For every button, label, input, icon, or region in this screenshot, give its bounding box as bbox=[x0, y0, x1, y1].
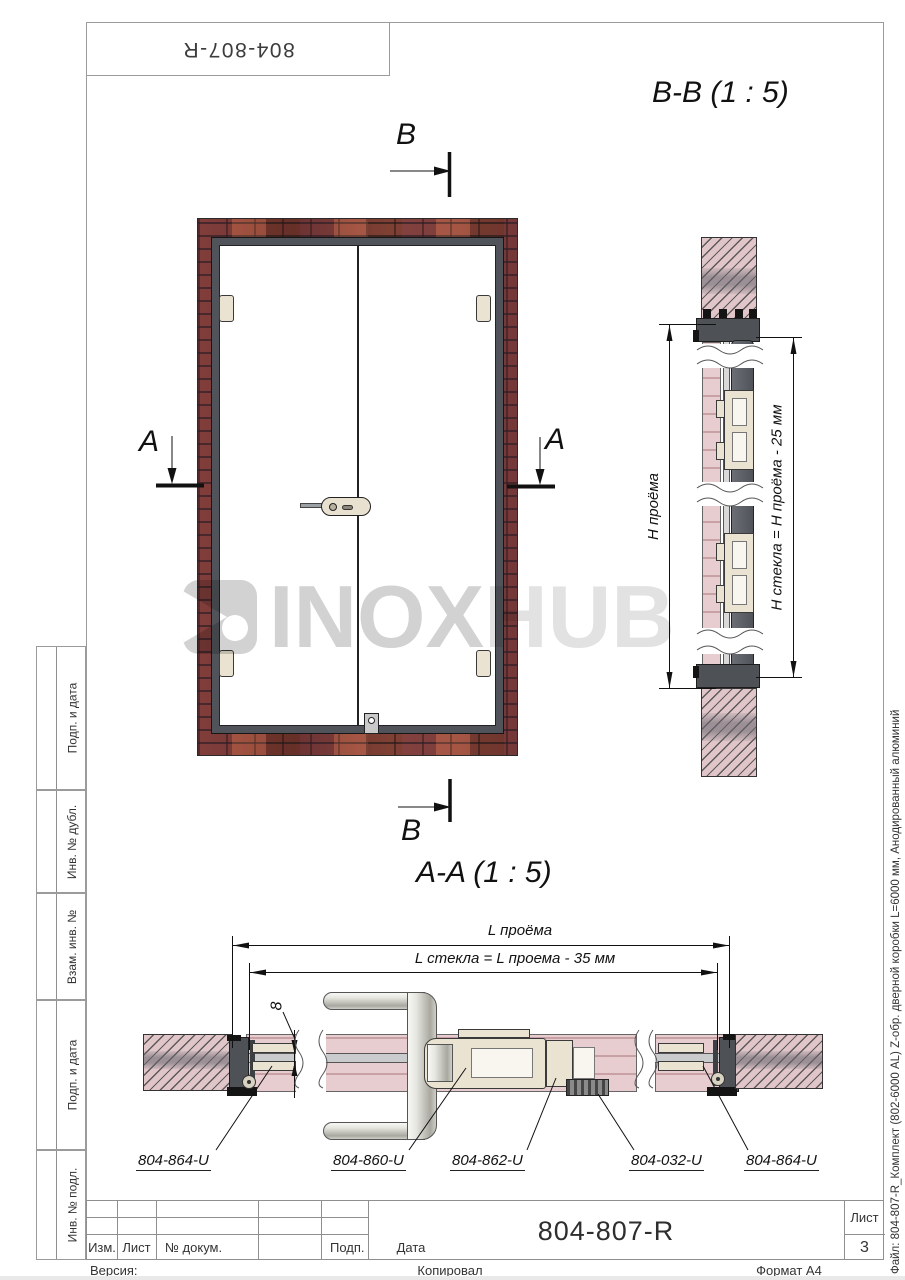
latch-slider bbox=[573, 1047, 595, 1079]
handle-plate bbox=[321, 497, 371, 516]
section-marker-a-left-letter: A bbox=[139, 425, 159, 459]
watermark-text-inox: INOX bbox=[269, 567, 484, 666]
lock-top-plate bbox=[458, 1029, 530, 1038]
section-marker-b-bottom-letter: B bbox=[401, 814, 421, 848]
bb-wall-bottom bbox=[701, 688, 757, 777]
bb-head-bracket bbox=[693, 330, 699, 342]
dim-l-glass-text: L стекла = L проема - 35 мм bbox=[315, 950, 715, 967]
aa-wall-right-band bbox=[736, 1051, 822, 1069]
aa-hinge-knuckle-right bbox=[711, 1072, 725, 1086]
callout-part-864-right: 804-864-U bbox=[744, 1152, 819, 1171]
strip-label-cell: Взам. инв. № bbox=[57, 894, 87, 999]
tb-vline bbox=[156, 1201, 157, 1259]
strip-label-cell: Инв. № дубл. bbox=[57, 791, 87, 892]
doc-number-top-rotated: 804-807-R bbox=[182, 37, 295, 61]
tb-col-podp: Подп. bbox=[330, 1234, 368, 1261]
aa-break-gap bbox=[637, 1028, 655, 1094]
dim-glass-thickness: 8 bbox=[264, 993, 290, 1019]
aa-wall-right bbox=[735, 1034, 823, 1089]
doc-number-top-box: 804-807-R bbox=[86, 22, 390, 76]
bb-break-gap bbox=[695, 628, 763, 654]
aa-hinge-plate-right bbox=[658, 1043, 704, 1053]
bb-hinge-bone bbox=[732, 541, 747, 569]
stamp-strip-inv-dubl: Инв. № дубл. bbox=[36, 790, 86, 893]
aa-wall-left-band bbox=[144, 1051, 231, 1069]
tb-col-list: Лист bbox=[117, 1234, 156, 1261]
bb-hinge-tab bbox=[716, 543, 725, 561]
aa-break-gap bbox=[296, 1028, 326, 1094]
dim-h-glass: H стекла = H проёма - 25 мм bbox=[760, 336, 794, 678]
aa-z-bracket-bottom-right bbox=[707, 1087, 737, 1096]
strip-label: Инв. № дубл. bbox=[65, 804, 79, 878]
strip-label-cell: Подп. и дата bbox=[57, 1001, 87, 1149]
callout-part-032: 804-032-U bbox=[629, 1152, 704, 1171]
strip-label-cell: Подп. и дата bbox=[57, 647, 87, 789]
section-marker-a-right-letter: A bbox=[545, 423, 565, 457]
bb-hinge-tab bbox=[716, 442, 725, 460]
dim-h-glass-text: H стекла = H проёма - 25 мм bbox=[769, 404, 786, 610]
logo-circle-cut bbox=[222, 615, 248, 641]
stamp-strip-vzam-inv: Взам. инв. № bbox=[36, 893, 86, 1000]
lock-inner-panel bbox=[471, 1048, 533, 1078]
aa-z-bracket-top-left bbox=[227, 1035, 241, 1041]
callout-part-864-left: 804-864-U bbox=[136, 1152, 211, 1171]
knuckle-pin bbox=[247, 1080, 251, 1084]
aa-hinge-plate-left bbox=[252, 1061, 296, 1071]
callout-part-862: 804-862-U bbox=[450, 1152, 525, 1171]
bb-sill-profile bbox=[696, 664, 760, 688]
dim-h-opening: H проёма bbox=[636, 346, 670, 666]
tb-hline bbox=[87, 1217, 368, 1218]
bb-head-profile bbox=[696, 318, 760, 342]
hinge-top-right bbox=[476, 295, 491, 322]
lock-body bbox=[424, 1038, 546, 1089]
bb-hinge-tab bbox=[716, 400, 725, 418]
lock-handle-clamp bbox=[427, 1044, 453, 1082]
section-bb-title: B-B (1 : 5) bbox=[652, 76, 789, 110]
inoxhub-logo-icon bbox=[183, 580, 257, 654]
hinge-top-left bbox=[219, 295, 234, 322]
strip-label: Подп. и дата bbox=[65, 1040, 79, 1111]
page-bottom-strip bbox=[0, 1276, 905, 1280]
strip-label: Подп. и дата bbox=[65, 683, 79, 754]
watermark: INOXHUB bbox=[183, 580, 675, 654]
aa-z-bracket-bottom-left bbox=[227, 1087, 257, 1096]
tb-vline bbox=[321, 1201, 322, 1259]
bb-hinge-bone bbox=[732, 432, 747, 462]
knuckle-pin bbox=[716, 1077, 720, 1081]
tb-doc-number: 804-807-R bbox=[368, 1201, 844, 1261]
aa-hinge-knuckle-left bbox=[242, 1075, 256, 1089]
title-block: Изм. Лист № докум. Подп. Дата 804-807-R … bbox=[86, 1200, 884, 1260]
callout-part-860: 804-860-U bbox=[331, 1152, 406, 1171]
floor-lock bbox=[364, 713, 379, 734]
bb-wall-top-band bbox=[702, 268, 756, 294]
bb-break-gap bbox=[695, 482, 763, 506]
logo-triangle-cut bbox=[183, 590, 227, 644]
section-aa-title: A-A (1 : 5) bbox=[416, 856, 552, 890]
handle-cylinder-hole bbox=[329, 503, 337, 511]
aa-wall-left bbox=[143, 1034, 232, 1091]
bb-hinge-tab bbox=[716, 585, 725, 603]
strip-label: Инв. № подл. bbox=[65, 1168, 79, 1243]
dim-glass-thickness-text: 8 bbox=[268, 1002, 286, 1011]
bb-wall-bottom-band bbox=[702, 713, 756, 741]
stamp-strip-inv-podl: Инв. № подл. bbox=[36, 1150, 86, 1260]
stamp-strip-sign-date-2: Подп. и дата bbox=[36, 1000, 86, 1150]
tb-col-izm: Изм. bbox=[87, 1234, 117, 1261]
hinge-bottom-left bbox=[219, 650, 234, 677]
floor-lock-hole bbox=[368, 717, 375, 724]
tb-col-doc: № докум. bbox=[165, 1234, 258, 1261]
tb-sheet-label: Лист bbox=[844, 1201, 885, 1234]
drawing-sheet: { "doc": { "number_top": "804-807-R" }, … bbox=[0, 0, 905, 1280]
tb-sheet-number: 3 bbox=[844, 1234, 885, 1261]
bb-break-gap bbox=[695, 344, 763, 368]
tb-vline bbox=[258, 1201, 259, 1259]
strike-keeper bbox=[566, 1079, 609, 1096]
aa-hinge-plate-right bbox=[658, 1061, 704, 1071]
file-label-vertical: Файл: 804-807-R_Комплект (802-6000 AL) Z… bbox=[890, 710, 902, 1274]
strip-label: Взам. инв. № bbox=[65, 909, 79, 983]
bb-hinge-bone bbox=[732, 398, 747, 426]
aa-hinge-plate-left bbox=[252, 1043, 296, 1053]
stamp-strip-sign-date-1: Подп. и дата bbox=[36, 646, 86, 790]
handle-thumbturn bbox=[342, 505, 353, 510]
bb-sill-bracket bbox=[693, 666, 699, 678]
dim-h-opening-text: H проёма bbox=[645, 473, 662, 540]
section-marker-b-top-letter: B bbox=[396, 118, 416, 152]
bb-hinge-bone bbox=[732, 575, 747, 605]
dim-l-opening-text: L проёма bbox=[320, 922, 720, 939]
strip-label-cell: Инв. № подл. bbox=[57, 1151, 87, 1259]
